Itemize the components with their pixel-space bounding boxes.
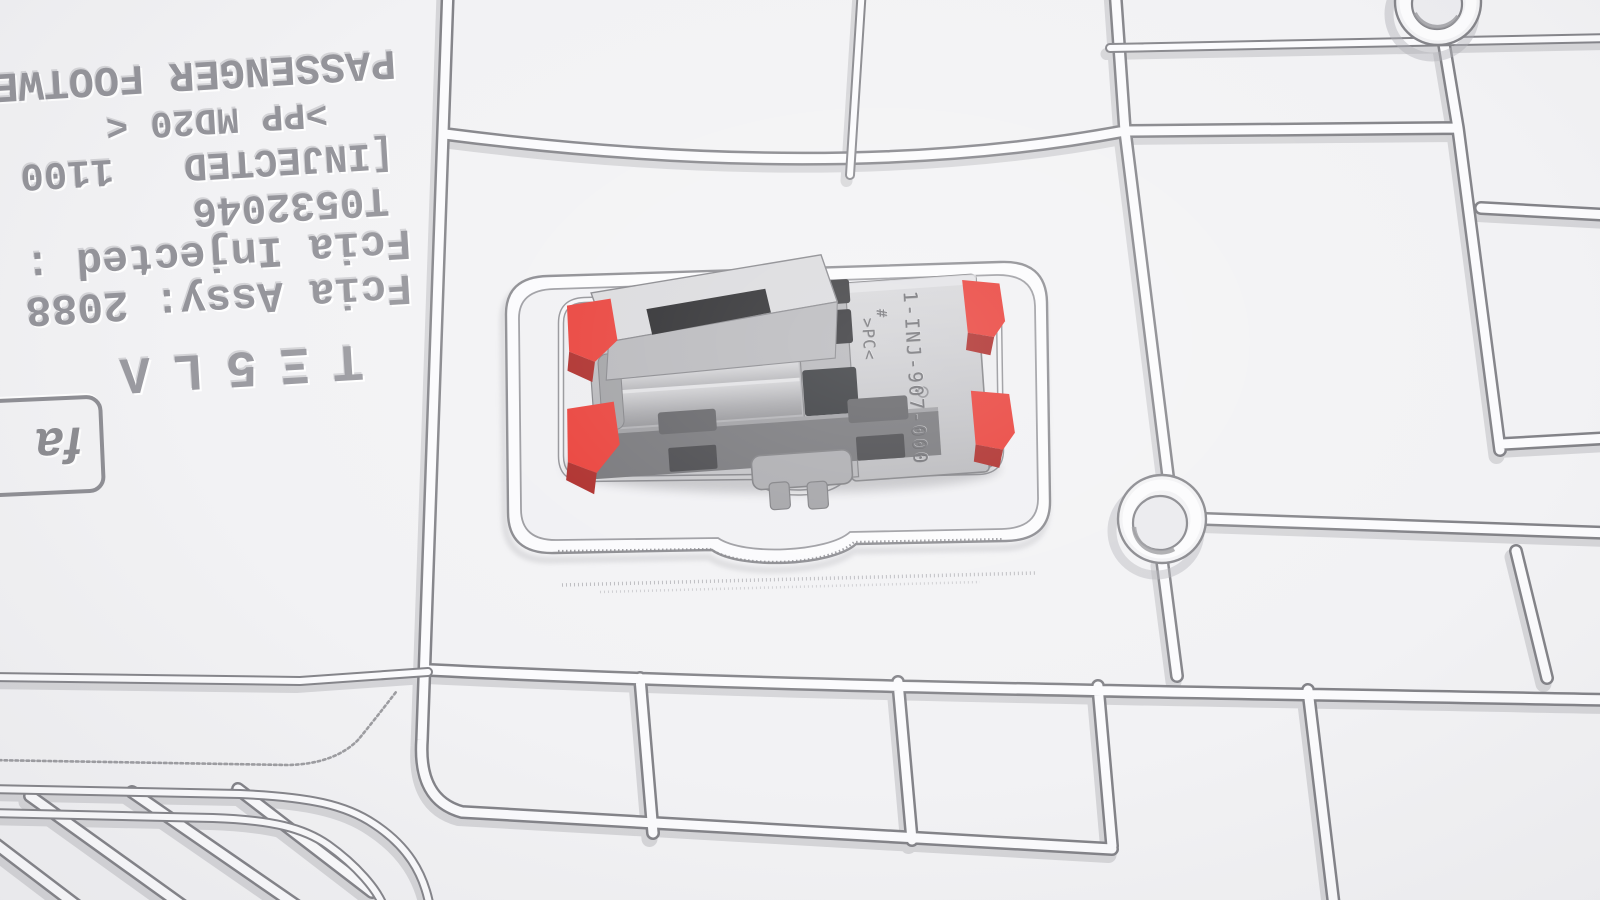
panel-illustration: TΞ5LΛ Fcia Assy: 2088 Fcia Injected : T0… [0, 0, 1600, 900]
supplier-logo-badge: fa [0, 394, 106, 499]
supplier-logo-text: fa [32, 415, 101, 476]
screw-boss-center [1112, 475, 1206, 575]
connector-material-code: >PC< [858, 317, 880, 361]
molded-panel-text: TΞ5LΛ Fcia Assy: 2088 Fcia Injected : T0… [0, 36, 420, 421]
texture-parting-line [0, 692, 396, 765]
